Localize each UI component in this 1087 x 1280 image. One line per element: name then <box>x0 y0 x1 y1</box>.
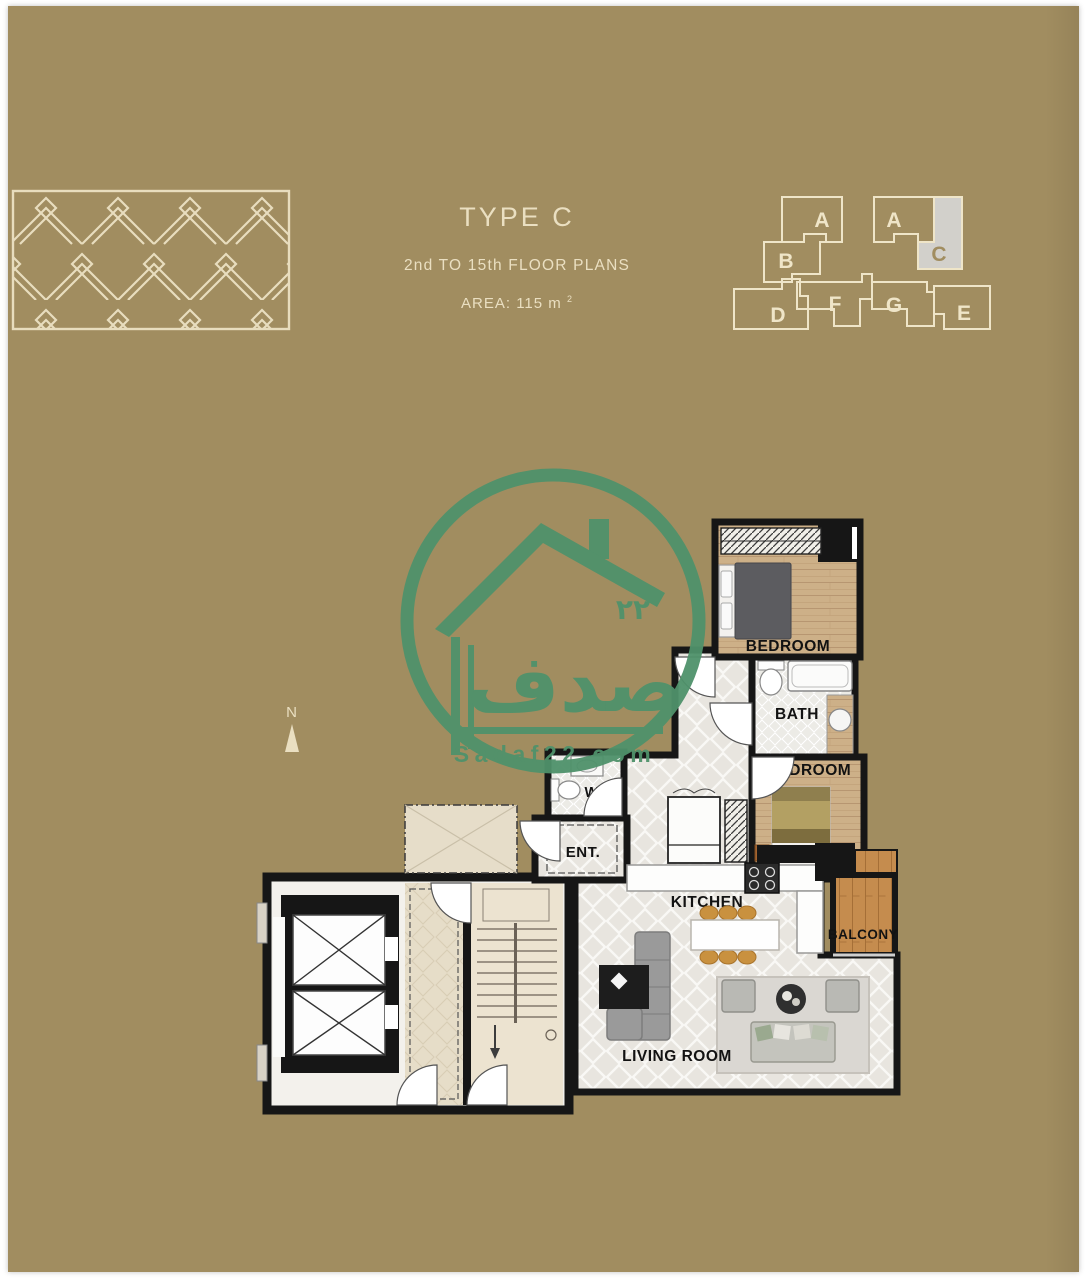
bath-label: BATH <box>775 706 819 723</box>
entrance-label: ENT. <box>566 844 601 861</box>
dining-table <box>691 920 779 950</box>
bath-sink-icon <box>827 695 853 755</box>
wardrobe <box>721 528 821 554</box>
watermark-underline <box>451 727 663 734</box>
key-plan-label-c: C <box>931 243 946 266</box>
key-plan-unit-a-left <box>782 197 842 242</box>
watermark-arabic-text: صدف <box>467 637 683 730</box>
watermark-site-url: Sadaf22.com <box>454 741 656 767</box>
key-plan-unit-a-right <box>874 197 934 242</box>
entrance-door <box>520 821 560 861</box>
page: { "colors": { "background": "#a18d60", "… <box>0 0 1087 1280</box>
watermark-number: ٢٢ <box>616 593 650 626</box>
sofa <box>751 1022 835 1062</box>
key-plan-label-f: F <box>829 293 842 316</box>
title-block: TYPE C 2nd TO 15th FLOOR PLANS AREA: 115… <box>352 202 682 312</box>
decorative-pattern <box>10 188 292 332</box>
key-plan-label-g: G <box>886 294 902 317</box>
stove-icon <box>745 863 779 893</box>
house-wall <box>451 637 460 755</box>
key-plan-label-d: D <box>770 304 785 327</box>
floor-range-subtitle: 2nd TO 15th FLOOR PLANS <box>352 257 682 275</box>
armchair <box>826 980 859 1012</box>
key-plan-label-e: E <box>957 302 971 325</box>
key-plan-label-a-right: A <box>886 209 901 232</box>
fridge-pantry <box>668 789 747 863</box>
elevator-shaft-2 <box>293 991 398 1055</box>
bathtub-icon <box>788 661 852 691</box>
exterior-ledge <box>257 903 267 943</box>
tv-unit <box>599 965 649 1009</box>
balcony-label: BALCONY <box>828 927 898 942</box>
key-plan-label-a-left: A <box>814 209 829 232</box>
wc-toilet-icon <box>551 779 580 801</box>
pantry-shelves <box>725 800 747 862</box>
bedroom-1: BEDROOM <box>715 520 860 657</box>
bed-double <box>719 563 791 639</box>
key-plan: A B D F G E A C <box>730 189 1002 341</box>
exterior-ledge <box>257 1045 267 1081</box>
coffee-table <box>776 984 806 1014</box>
bathroom: BATH <box>752 657 855 757</box>
page-title: TYPE C <box>352 202 682 233</box>
kitchen-counter <box>627 865 823 891</box>
floor-plan-sheet: TYPE C 2nd TO 15th FLOOR PLANS AREA: 115… <box>8 6 1079 1272</box>
area-text: AREA: 115 m 2 <box>352 294 682 312</box>
living-room-label: LIVING ROOM <box>622 1048 732 1065</box>
key-plan-unit-g <box>872 282 934 326</box>
bedroom-1-label: BEDROOM <box>746 638 830 655</box>
toilet-icon <box>758 661 784 695</box>
armchair <box>722 980 755 1012</box>
utility-room <box>405 805 517 873</box>
key-plan-unit-b <box>764 234 826 282</box>
key-plan-label-b: B <box>778 250 793 273</box>
elevator-shaft-1 <box>293 915 398 985</box>
kitchen-counter-leg <box>797 891 823 953</box>
watermark-logo: صدف ٢٢ Sadaf22.com <box>393 461 713 781</box>
